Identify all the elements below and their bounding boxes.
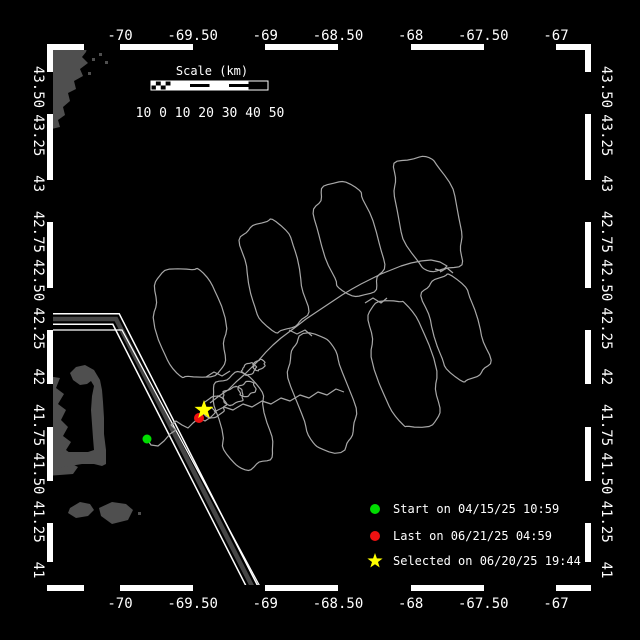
lat-tick-label-left: 42 [30,368,46,385]
frame-band-segment [585,481,591,523]
lon-tick-label-bottom: -68.50 [313,596,364,612]
frame-band-segment [47,562,53,585]
scale-bar-checker [151,81,156,86]
scale-bar-checker [166,86,171,91]
frame-band-segment [47,481,53,523]
lon-tick-label-top: -68.50 [313,28,364,44]
lat-tick-label-left: 43 [30,175,46,192]
frame-band-segment [47,288,53,330]
lat-tick-label-left: 41.75 [30,404,46,446]
lon-tick-label-bottom: -67.50 [458,596,509,612]
land-islet [92,58,95,61]
lat-tick-label-right: 43.50 [598,66,614,108]
lat-tick-label-right: 42 [598,368,614,385]
lat-tick-label-left: 41.50 [30,452,46,494]
frame-band-segment [585,384,591,427]
lat-tick-label-left: 43.50 [30,66,46,108]
legend-label: Selected on 06/20/25 19:44 [393,554,581,568]
frame-band-segment [47,180,53,222]
legend-start-dot [370,504,380,514]
lon-tick-label-bottom: -70 [107,596,132,612]
frame-band-segment [47,384,53,427]
lon-tick-label-top: -69 [253,28,278,44]
frame-band-segment [338,44,411,50]
frame-band-segment [84,585,120,591]
lon-tick-label-top: -69.50 [167,28,218,44]
lon-tick-label-bottom: -67 [543,596,568,612]
lat-tick-label-right: 41.25 [598,501,614,543]
land-islet [138,512,141,515]
lat-tick-label-left: 41 [30,562,46,579]
land-islet [105,61,108,64]
land-islet [99,53,102,56]
frame-band-segment [484,585,556,591]
land-islet [88,72,91,75]
lat-tick-label-left: 42.75 [30,211,46,253]
frame-band-segment [585,288,591,330]
frame-band-segment [585,72,591,114]
scale-bar-segment-stripe [190,84,210,87]
scale-bar-segment [171,81,191,90]
lat-tick-label-right: 41.75 [598,404,614,446]
lat-tick-label-right: 41 [598,562,614,579]
glider-track-map-figure: -70-70-69.50-69.50-69-69-68.50-68.50-68-… [0,0,640,640]
legend-label: Last on 06/21/25 04:59 [393,529,552,543]
lat-tick-label-right: 43 [598,175,614,192]
scale-bar-segment [210,81,230,90]
track-map-canvas[interactable]: -70-70-69.50-69.50-69-69-68.50-68.50-68-… [0,0,640,640]
frame-band-segment [47,72,53,114]
lon-tick-label-bottom: -69 [253,596,278,612]
scale-bar-segment-stripe [229,84,249,87]
lat-tick-label-right: 42.50 [598,259,614,301]
lat-tick-label-right: 42.75 [598,211,614,253]
scale-bar-numbers: 10 0 10 20 30 40 50 [136,106,285,121]
lon-tick-label-bottom: -69.50 [167,596,218,612]
scale-bar-title: Scale (km) [176,64,248,78]
lat-tick-label-left: 42.25 [30,307,46,349]
lat-tick-label-right: 43.25 [598,114,614,156]
legend: Start on 04/15/25 10:59Last on 06/21/25 … [367,502,580,568]
frame-band-segment [338,585,411,591]
frame-band-segment [193,585,265,591]
start-marker [143,435,152,444]
lat-tick-label-left: 41.25 [30,501,46,543]
lon-tick-label-top: -67.50 [458,28,509,44]
frame-band-segment [84,44,120,50]
lon-tick-label-top: -70 [107,28,132,44]
lat-tick-label-right: 41.50 [598,452,614,494]
frame-band-segment [585,562,591,585]
legend-last-dot [370,531,380,541]
lat-tick-label-right: 42.25 [598,307,614,349]
lon-tick-label-top: -67 [543,28,568,44]
scale-bar-checker [156,86,161,91]
lon-tick-label-bottom: -68 [398,596,423,612]
frame-band-segment [484,44,556,50]
legend-label: Start on 04/15/25 10:59 [393,502,559,516]
frame-band-segment [193,44,265,50]
scale-bar-checker [161,81,166,86]
frame-band-segment [585,180,591,222]
lat-tick-label-left: 43.25 [30,114,46,156]
lon-tick-label-top: -68 [398,28,423,44]
lat-tick-label-left: 42.50 [30,259,46,301]
